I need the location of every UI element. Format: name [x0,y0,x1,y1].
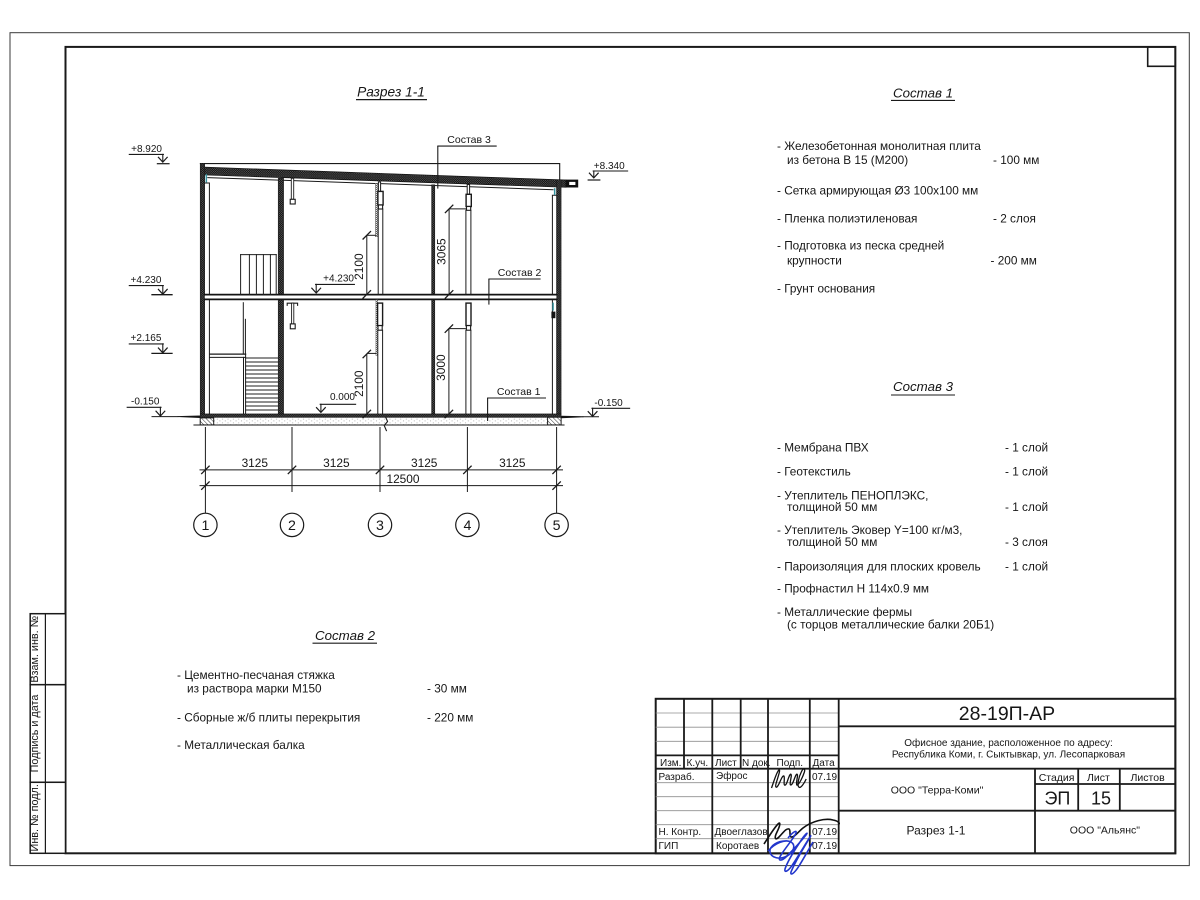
svg-text:12500: 12500 [386,472,419,486]
svg-text:Состав 3: Состав 3 [893,379,954,394]
svg-text:- 100 мм: - 100 мм [993,153,1039,167]
svg-text:толщиной 50 мм: толщиной 50 мм [787,500,877,514]
svg-text:Подпись и дата: Подпись и дата [29,695,41,773]
svg-text:- Железобетонная монолитная п: - Железобетонная монолитная плита [777,139,981,153]
svg-text:Инв. № подл.: Инв. № подл. [29,784,41,851]
svg-text:Листов: Листов [1131,772,1166,784]
svg-text:2100: 2100 [352,253,366,280]
svg-text:- Грунт основания: - Грунт основания [777,281,875,295]
svg-text:Состав 2: Состав 2 [315,628,376,643]
svg-text:07.19: 07.19 [812,841,837,852]
svg-text:Республика Коми, г. Сыктывкар,: Республика Коми, г. Сыктывкар, ул. Лесоп… [892,749,1125,761]
svg-text:3000: 3000 [434,354,448,381]
svg-text:К.уч.: К.уч. [687,758,709,769]
svg-text:- Металлическая балка: - Металлическая балка [177,738,305,752]
svg-text:- Геотекстиль: - Геотекстиль [777,465,851,479]
svg-text:Взам. инв. №: Взам. инв. № [29,615,41,682]
svg-text:3: 3 [376,518,384,534]
svg-text:15: 15 [1091,789,1111,809]
svg-text:- Цементно-песчаная стяжка: - Цементно-песчаная стяжка [177,668,335,682]
svg-text:+8.340: +8.340 [594,161,625,172]
svg-text:4: 4 [463,518,471,534]
svg-text:3125: 3125 [499,456,526,470]
svg-text:- 200 мм: - 200 мм [991,253,1037,267]
svg-text:+4.230: +4.230 [131,275,162,286]
svg-text:-0.150: -0.150 [131,397,160,408]
svg-text:N док.: N док. [742,758,771,769]
svg-text:- 1 слой: - 1 слой [1005,559,1048,573]
svg-text:07.19: 07.19 [812,827,837,838]
svg-text:07.19: 07.19 [812,772,837,783]
svg-text:- Сборные ж/б плиты перекрытия: - Сборные ж/б плиты перекрытия [177,711,360,725]
svg-text:Состав 2: Состав 2 [498,267,542,279]
svg-text:1: 1 [201,518,209,534]
svg-text:- Сетка армирующая Ø3 100х100: - Сетка армирующая Ø3 100х100 мм [777,183,978,197]
svg-text:из бетона В 15 (М200): из бетона В 15 (М200) [787,153,908,167]
svg-text:Разрез 1-1: Разрез 1-1 [357,84,425,99]
svg-text:+8.920: +8.920 [131,144,162,155]
svg-text:2: 2 [288,518,296,534]
svg-text:3125: 3125 [242,456,269,470]
svg-text:3065: 3065 [434,238,448,265]
svg-text:3125: 3125 [323,456,350,470]
svg-text:- 1 слой: - 1 слой [1005,440,1048,454]
svg-text:толщиной 50 мм: толщиной 50 мм [787,535,877,549]
svg-text:(с торцов металлические балки: (с торцов металлические балки 20Б1) [787,618,994,632]
svg-text:-0.150: -0.150 [594,398,623,409]
svg-text:Коротаев: Коротаев [716,841,759,852]
svg-text:Дата: Дата [813,758,836,769]
svg-text:Разрез 1-1: Разрез 1-1 [907,823,966,837]
svg-text:Изм.: Изм. [660,758,681,769]
svg-text:из раствора марки М150: из раствора марки М150 [187,681,322,695]
svg-text:+2.165: +2.165 [131,333,162,344]
svg-text:Офисное здание, расположенное: Офисное здание, расположенное по адресу: [904,737,1113,749]
svg-text:5: 5 [553,518,561,534]
svg-text:- 1 слой: - 1 слой [1005,500,1048,514]
svg-text:крупности: крупности [787,253,842,267]
svg-text:ЭП: ЭП [1044,789,1070,809]
svg-text:Н. Контр.: Н. Контр. [659,827,702,838]
svg-text:Состав 3: Состав 3 [447,134,491,146]
svg-text:- 1 слой: - 1 слой [1005,465,1048,479]
svg-text:Подп.: Подп. [777,758,804,769]
svg-text:- Подготовка из песка средней: - Подготовка из песка средней [777,239,944,253]
svg-text:28-19П-АР: 28-19П-АР [959,703,1055,725]
svg-text:Двоеглазов: Двоеглазов [715,827,768,838]
svg-text:Состав 1: Состав 1 [497,386,541,398]
svg-text:3125: 3125 [411,456,438,470]
svg-text:Состав 1: Состав 1 [893,85,953,100]
svg-text:- 220 мм: - 220 мм [427,711,473,725]
svg-text:ООО "Терра-Коми": ООО "Терра-Коми" [891,784,984,796]
svg-text:Разраб.: Разраб. [659,771,695,783]
svg-text:2100: 2100 [352,370,366,397]
svg-text:- 2 слоя: - 2 слоя [993,211,1036,225]
svg-text:- 30 мм: - 30 мм [427,681,467,695]
svg-text:- Профнастил Н 114х0.9 мм: - Профнастил Н 114х0.9 мм [777,581,929,595]
svg-text:- Мембрана ПВХ: - Мембрана ПВХ [777,440,869,454]
svg-text:Лист: Лист [1087,772,1110,784]
svg-text:Стадия: Стадия [1039,772,1075,784]
svg-text:ООО "Альянс": ООО "Альянс" [1070,825,1140,837]
svg-text:- Пленка полиэтиленовая: - Пленка полиэтиленовая [777,211,917,225]
svg-text:- Пароизоляция для плоских кро: - Пароизоляция для плоских кровель [777,559,981,573]
svg-text:- 3 слоя: - 3 слоя [1005,535,1048,549]
svg-text:Эфрос: Эфрос [716,770,748,782]
svg-text:+4.230: +4.230 [323,274,354,285]
svg-text:Лист: Лист [715,758,737,769]
svg-text:ГИП: ГИП [659,841,679,852]
